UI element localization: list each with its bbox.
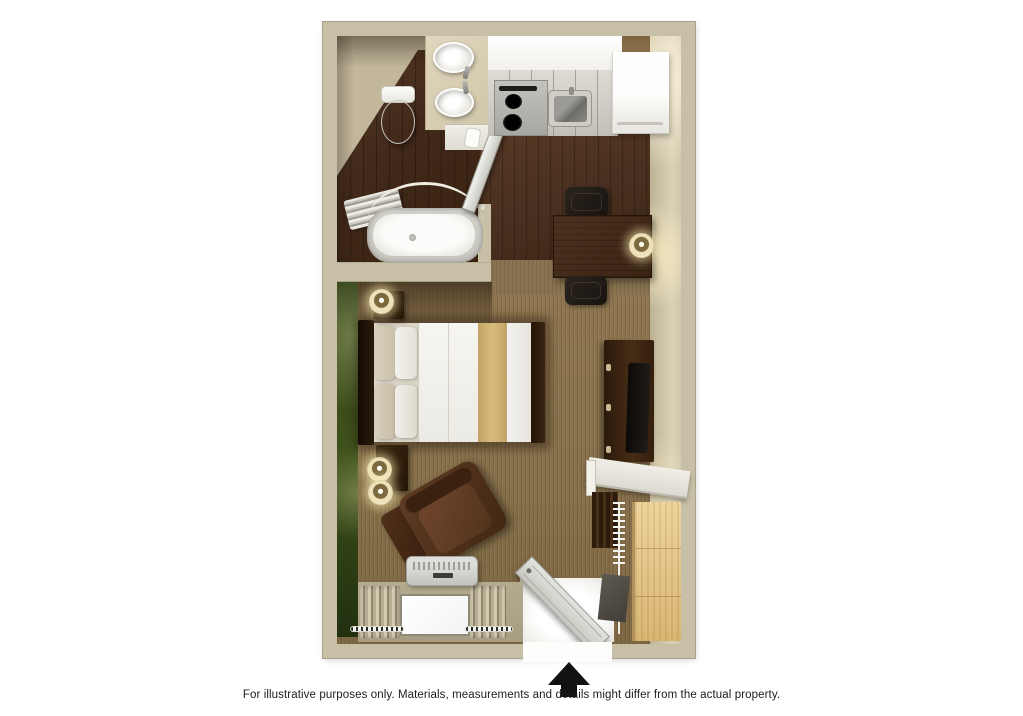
drawer-handle — [606, 364, 611, 371]
pillow — [395, 385, 417, 438]
bed-footboard — [531, 322, 545, 443]
stove-burner — [503, 114, 522, 131]
bed-headboard — [358, 320, 374, 445]
bed-runner — [478, 323, 507, 442]
hand-towel — [464, 127, 482, 149]
shower-rod-end — [479, 204, 485, 210]
panel-seam — [635, 548, 681, 549]
refrigerator-handle — [617, 122, 663, 125]
chair-seat — [571, 282, 601, 299]
bathtub-drain — [409, 234, 416, 241]
luggage-bench — [598, 574, 631, 623]
drawer-handle — [606, 404, 611, 411]
entry-doorway-opening — [523, 642, 612, 662]
window — [400, 594, 470, 636]
bathroom-divider-wall — [337, 262, 491, 282]
kitchen-counter — [488, 36, 622, 70]
desk-chair — [565, 187, 608, 217]
closet-shelf-bracket — [586, 460, 596, 496]
table-lamp — [369, 289, 394, 314]
panel-seam — [635, 596, 681, 597]
bed-foot-linen — [507, 323, 531, 442]
ptac-vents — [413, 562, 473, 570]
kitchen-faucet — [569, 87, 574, 95]
toilet — [381, 100, 415, 144]
closet-door-panel — [632, 502, 681, 641]
disclaimer-text: For illustrative purposes only. Material… — [0, 689, 1023, 701]
stove — [494, 80, 548, 136]
television — [625, 363, 650, 454]
ptac-unit — [406, 556, 478, 586]
door-knob — [525, 567, 532, 574]
duvet-fold — [448, 323, 449, 442]
table-lamp — [367, 457, 392, 482]
stove-burner — [505, 94, 522, 109]
pillow — [375, 325, 395, 380]
pillow — [375, 384, 395, 439]
floor-plan-page: For illustrative purposes only. Material… — [0, 0, 1023, 716]
clothes-hangers — [613, 502, 625, 568]
studio-floor-plan — [323, 22, 695, 658]
ptac-control — [433, 573, 453, 578]
entrance-arrow-icon — [548, 662, 590, 685]
kitchen-sink-basin — [554, 96, 587, 122]
curtain-rod — [465, 626, 513, 632]
table-lamp — [368, 480, 393, 505]
drawer-handle — [606, 446, 611, 453]
desk-lamp — [629, 233, 654, 258]
desk-chair — [565, 276, 607, 305]
bed-pillow-area — [374, 323, 418, 442]
stove-vent — [499, 86, 537, 91]
refrigerator — [612, 52, 669, 134]
pillow — [395, 327, 417, 379]
curtain-rod — [350, 626, 404, 632]
kitchen-sink — [548, 90, 592, 127]
chair-seat — [571, 193, 602, 211]
